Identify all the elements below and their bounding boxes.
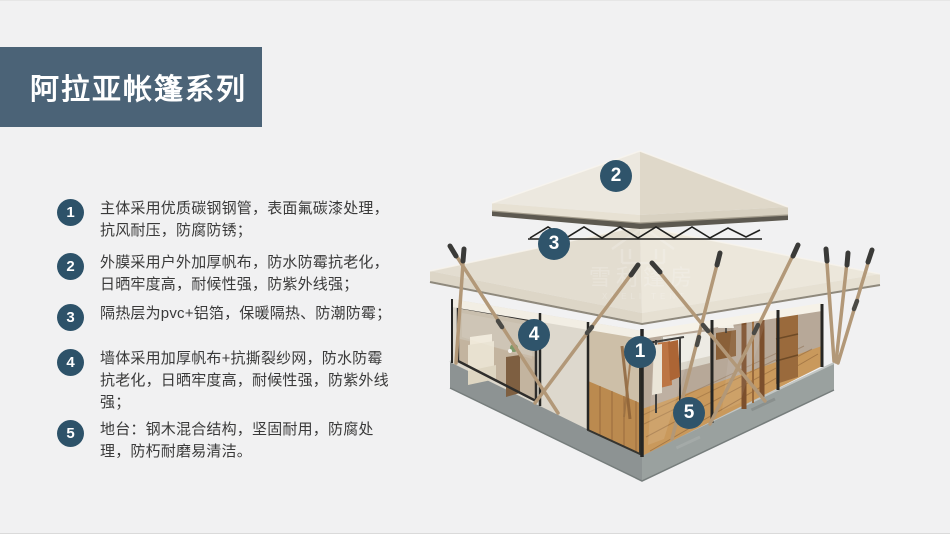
tent-figure: 雪利篷房 XUELI TENT — [410, 141, 950, 493]
feature-list: 1 主体采用优质碳钢钢管，表面氟碳漆处理，抗风耐压，防腐防锈； 2 外膜采用户外… — [0, 1, 410, 534]
feature-item: 5 地台：钢木混合结构，坚固耐用，防腐处理，防朽耐磨易清洁。 — [57, 419, 405, 463]
feature-item: 4 墙体采用加厚帆布+抗撕裂纱网，防水防霉抗老化，日晒牢度高，耐候性强，防紫外线… — [57, 348, 405, 414]
feature-item: 2 外膜采用户外加厚帆布，防水防霉抗老化，日晒牢度高，耐候性强，防紫外线强； — [57, 252, 405, 296]
callout-2: 2 — [600, 160, 632, 192]
feature-number-badge: 1 — [57, 199, 84, 226]
upper-roof — [492, 151, 788, 223]
callout-4: 4 — [518, 319, 550, 351]
feature-number-badge: 4 — [57, 349, 84, 376]
feature-text: 外膜采用户外加厚帆布，防水防霉抗老化，日晒牢度高，耐候性强，防紫外线强； — [100, 252, 393, 296]
feature-text: 墙体采用加厚帆布+抗撕裂纱网，防水防霉抗老化，日晒牢度高，耐候性强，防紫外线强； — [100, 348, 393, 414]
feature-text: 主体采用优质碳钢钢管，表面氟碳漆处理，抗风耐压，防腐防锈； — [100, 198, 393, 242]
callout-3: 3 — [538, 228, 570, 260]
feature-text: 地台：钢木混合结构，坚固耐用，防腐处理，防朽耐磨易清洁。 — [100, 419, 393, 463]
feature-text: 隔热层为pvc+铝箔，保暖隔热、防潮防霉； — [100, 303, 393, 331]
callout-1: 1 — [624, 336, 656, 368]
watermark-cn: 雪利篷房 — [589, 265, 697, 290]
feature-item: 3 隔热层为pvc+铝箔，保暖隔热、防潮防霉； — [57, 303, 405, 331]
feature-number-badge: 2 — [57, 253, 84, 280]
callout-5: 5 — [673, 397, 705, 429]
feature-item: 1 主体采用优质碳钢钢管，表面氟碳漆处理，抗风耐压，防腐防锈； — [57, 198, 405, 242]
feature-number-badge: 3 — [57, 304, 84, 331]
slide: 阿拉亚帐篷系列 1 主体采用优质碳钢钢管，表面氟碳漆处理，抗风耐压，防腐防锈； … — [0, 0, 950, 534]
feature-number-badge: 5 — [57, 420, 84, 447]
tent-illustration: 雪利篷房 XUELI TENT — [410, 141, 950, 493]
